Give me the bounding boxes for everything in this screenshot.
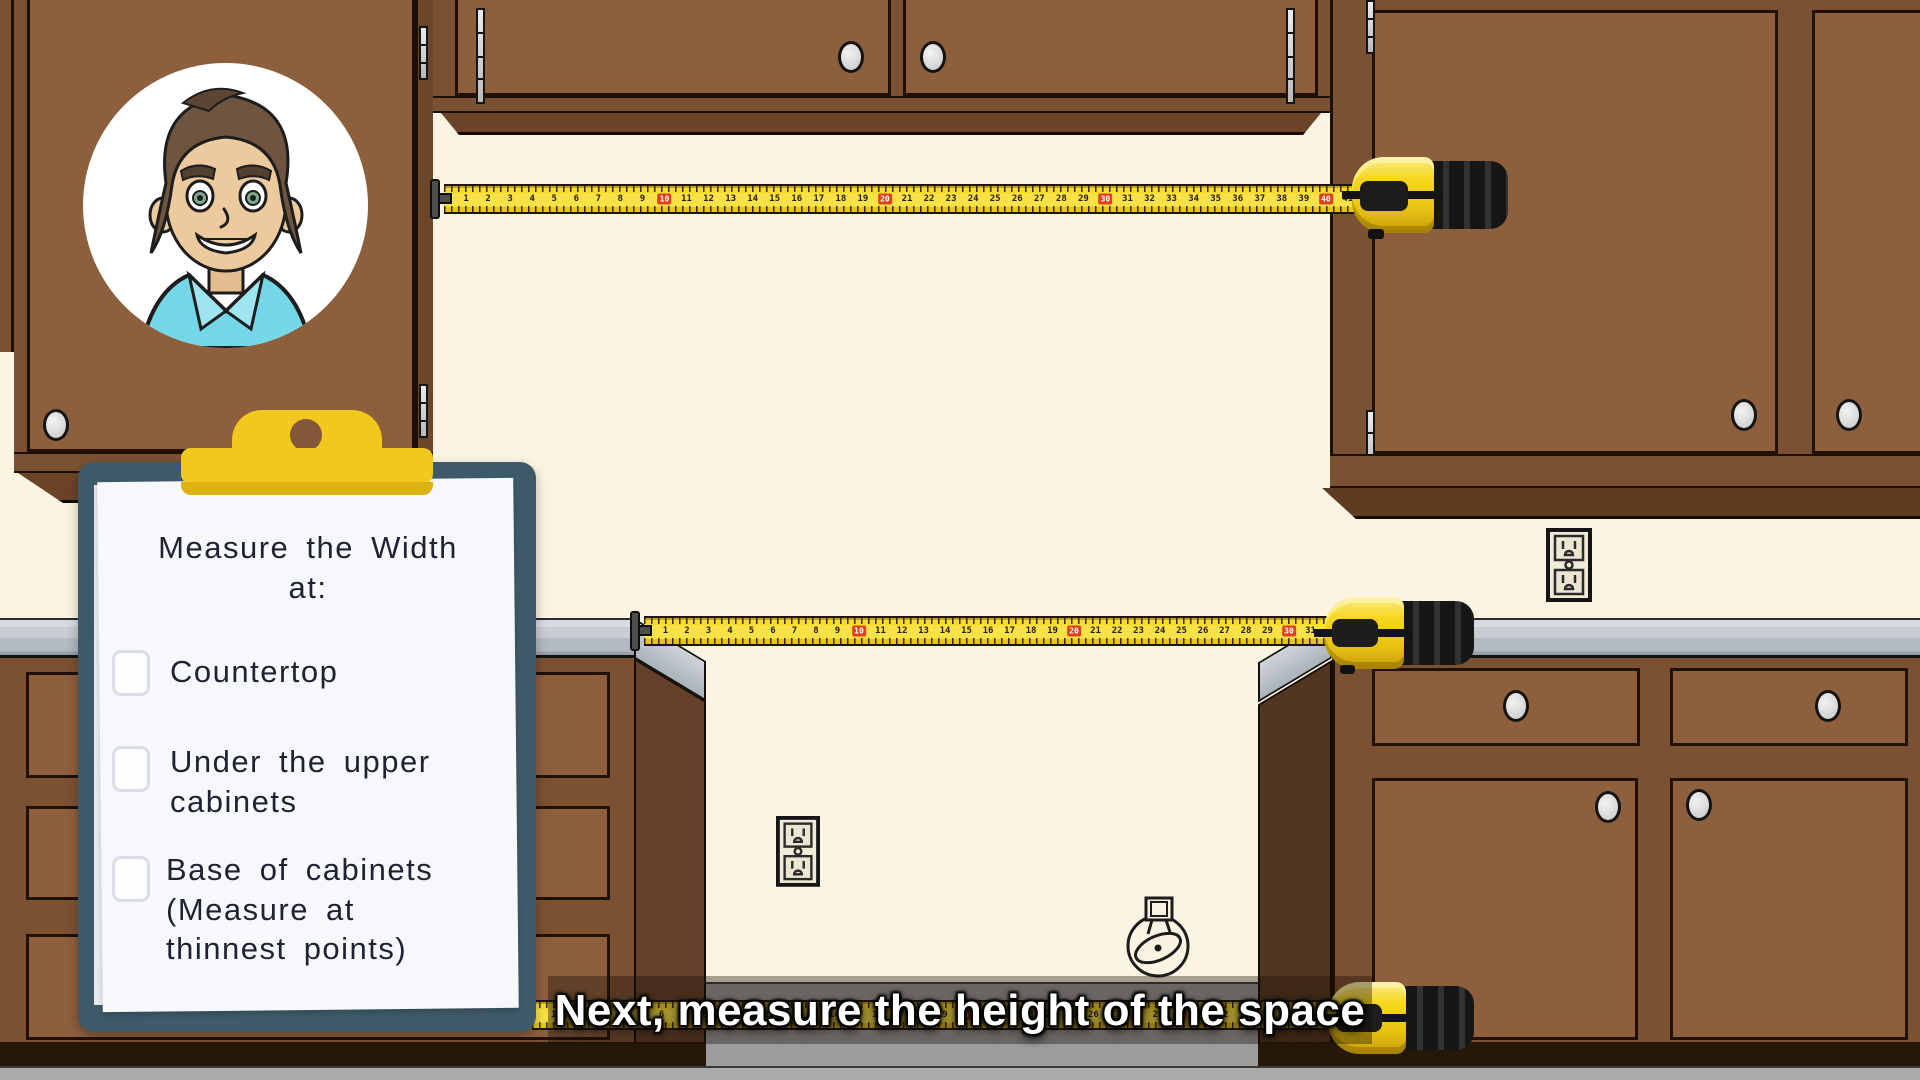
tape-number: 39 (1298, 194, 1309, 204)
tape-number: 37 (1254, 194, 1265, 204)
tape-number: 25 (990, 194, 1001, 204)
cabinet-knob (43, 409, 69, 441)
clipboard: Measure the Width at: Countertop Under t… (78, 405, 538, 1035)
measuring-tape-middle: 1234567891011121314151617181920212223242… (628, 595, 1488, 675)
hinge-icon (1366, 0, 1375, 54)
tape-number: 23 (1133, 626, 1144, 636)
tape-number: 24 (1155, 626, 1166, 636)
cabinet-knob (1836, 399, 1862, 431)
tape-number: 35 (1210, 194, 1221, 204)
tape-number: 9 (640, 194, 645, 204)
tape-number: 36 (1232, 194, 1243, 204)
tape-number: 22 (924, 194, 935, 204)
tape-number: 25 (1176, 626, 1187, 636)
tape-number: 8 (618, 194, 623, 204)
cabinet-door-right (903, 0, 1318, 96)
tape-number: 26 (1012, 194, 1023, 204)
tape-number: 28 (1241, 626, 1252, 636)
clipboard-clip (181, 482, 433, 495)
tape-number: 12 (897, 626, 908, 636)
power-outlet-icon (776, 816, 820, 888)
tape-number: 27 (1219, 626, 1230, 636)
checkbox (112, 746, 150, 792)
tape-number: 3 (706, 626, 711, 636)
tape-number: 10 (852, 626, 866, 637)
tape-number: 29 (1078, 194, 1089, 204)
tape-number: 28 (1056, 194, 1067, 204)
tape-number: 30 (1099, 194, 1113, 205)
tape-scale: 1234567891011121314151617181920212223242… (644, 618, 1332, 644)
tape-number: 6 (770, 626, 775, 636)
tape-number: 4 (529, 194, 534, 204)
tape-number: 15 (769, 194, 780, 204)
tape-number: 20 (878, 194, 892, 205)
tape-number: 20 (1067, 626, 1081, 637)
tape-number: 13 (918, 626, 929, 636)
tape-number: 23 (946, 194, 957, 204)
tape-number: 38 (1276, 194, 1287, 204)
tape-number: 30 (1282, 626, 1296, 637)
hinge-icon (476, 8, 485, 104)
tape-number: 31 (1122, 194, 1133, 204)
tape-number: 24 (968, 194, 979, 204)
checkbox (112, 650, 150, 696)
cabinet-bottom-rail (1330, 454, 1920, 488)
checklist-item-label: Countertop (170, 652, 500, 692)
tape-number: 40 (1319, 194, 1333, 205)
checklist-item-label: Under the upper cabinets (170, 742, 510, 821)
tape-number: 16 (983, 626, 994, 636)
cabinet-knob (838, 41, 864, 73)
tape-number: 17 (1004, 626, 1015, 636)
tape-number: 19 (1047, 626, 1058, 636)
cabinet-bottom-trim (1322, 488, 1920, 519)
door-knob (1595, 791, 1621, 823)
kitchen-scene: 1234567891011121314151617181920212223242… (0, 0, 1920, 1080)
tape-number: 27 (1034, 194, 1045, 204)
tape-number: 5 (749, 626, 754, 636)
cabinet-valance (441, 113, 1321, 135)
cabinet-knob (1731, 399, 1757, 431)
upper-middle-cabinet (433, 0, 1330, 136)
cabinet-carcass (0, 0, 14, 352)
tape-number: 14 (940, 626, 951, 636)
tape-hook-icon (438, 193, 452, 204)
tape-number: 14 (747, 194, 758, 204)
cartoon-face (83, 63, 368, 348)
floor (0, 1066, 1920, 1080)
checklist-item-label: Base of cabinets (Measure at thinnest po… (166, 850, 506, 969)
tape-lock-tab (1368, 229, 1384, 239)
cabinet-door-right (1812, 10, 1920, 454)
tape-number: 29 (1262, 626, 1273, 636)
tape-number: 7 (596, 194, 601, 204)
tape-number: 9 (835, 626, 840, 636)
tape-number: 18 (835, 194, 846, 204)
tape-number: 11 (681, 194, 692, 204)
tape-number: 8 (813, 626, 818, 636)
tape-number: 32 (1144, 194, 1155, 204)
hinge-icon (1286, 8, 1295, 104)
tape-number: 1 (663, 626, 668, 636)
tape-blade: 1234567891011121314151617181920212223242… (444, 184, 1370, 214)
tape-number: 6 (574, 194, 579, 204)
cabinet-door-left (455, 0, 891, 96)
tape-number: 34 (1188, 194, 1199, 204)
tape-number: 21 (1090, 626, 1101, 636)
clip-hole (290, 419, 322, 451)
tape-number: 10 (658, 194, 672, 205)
door-knob (1686, 789, 1712, 821)
tape-number: 22 (1112, 626, 1123, 636)
tape-number: 12 (703, 194, 714, 204)
tape-number: 17 (813, 194, 824, 204)
tape-number: 33 (1166, 194, 1177, 204)
tape-number: 13 (725, 194, 736, 204)
gas-valve-icon (1120, 896, 1196, 980)
tape-lock-tab (1340, 665, 1355, 674)
tape-number: 5 (552, 194, 557, 204)
tape-blade: 1234567891011121314151617181920212223242… (644, 616, 1332, 646)
tape-scale: 1234567891011121314151617181920212223242… (444, 186, 1370, 212)
tape-hook-icon (638, 625, 652, 636)
tape-number: 26 (1198, 626, 1209, 636)
tape-number: 2 (485, 194, 490, 204)
tape-number: 2 (684, 626, 689, 636)
tape-number: 4 (727, 626, 732, 636)
drawer-front (1670, 668, 1908, 746)
hinge-icon (419, 26, 428, 80)
tape-number: 1 (463, 194, 468, 204)
tape-number: 18 (1026, 626, 1037, 636)
drawer-knob (1815, 690, 1841, 722)
tape-number: 19 (857, 194, 868, 204)
tape-number: 11 (875, 626, 886, 636)
clipboard-clip (181, 448, 433, 484)
tape-number: 7 (792, 626, 797, 636)
measuring-tape-top: 1234567891011121314151617181920212223242… (430, 155, 1510, 245)
checklist-heading: Measure the Width at: (118, 528, 498, 607)
drawer-knob (1503, 690, 1529, 722)
cabinet-bottom-rail (433, 96, 1330, 113)
upper-right-cabinet (1330, 0, 1920, 519)
checkbox (112, 856, 150, 902)
tape-belt-clip (1360, 181, 1408, 211)
presenter-avatar (83, 63, 368, 348)
tape-belt-clip (1332, 619, 1378, 647)
tape-number: 3 (507, 194, 512, 204)
power-outlet-icon (1546, 528, 1592, 600)
tape-number: 16 (791, 194, 802, 204)
cabinet-knob (920, 41, 946, 73)
tape-number: 21 (902, 194, 913, 204)
tape-number: 15 (961, 626, 972, 636)
